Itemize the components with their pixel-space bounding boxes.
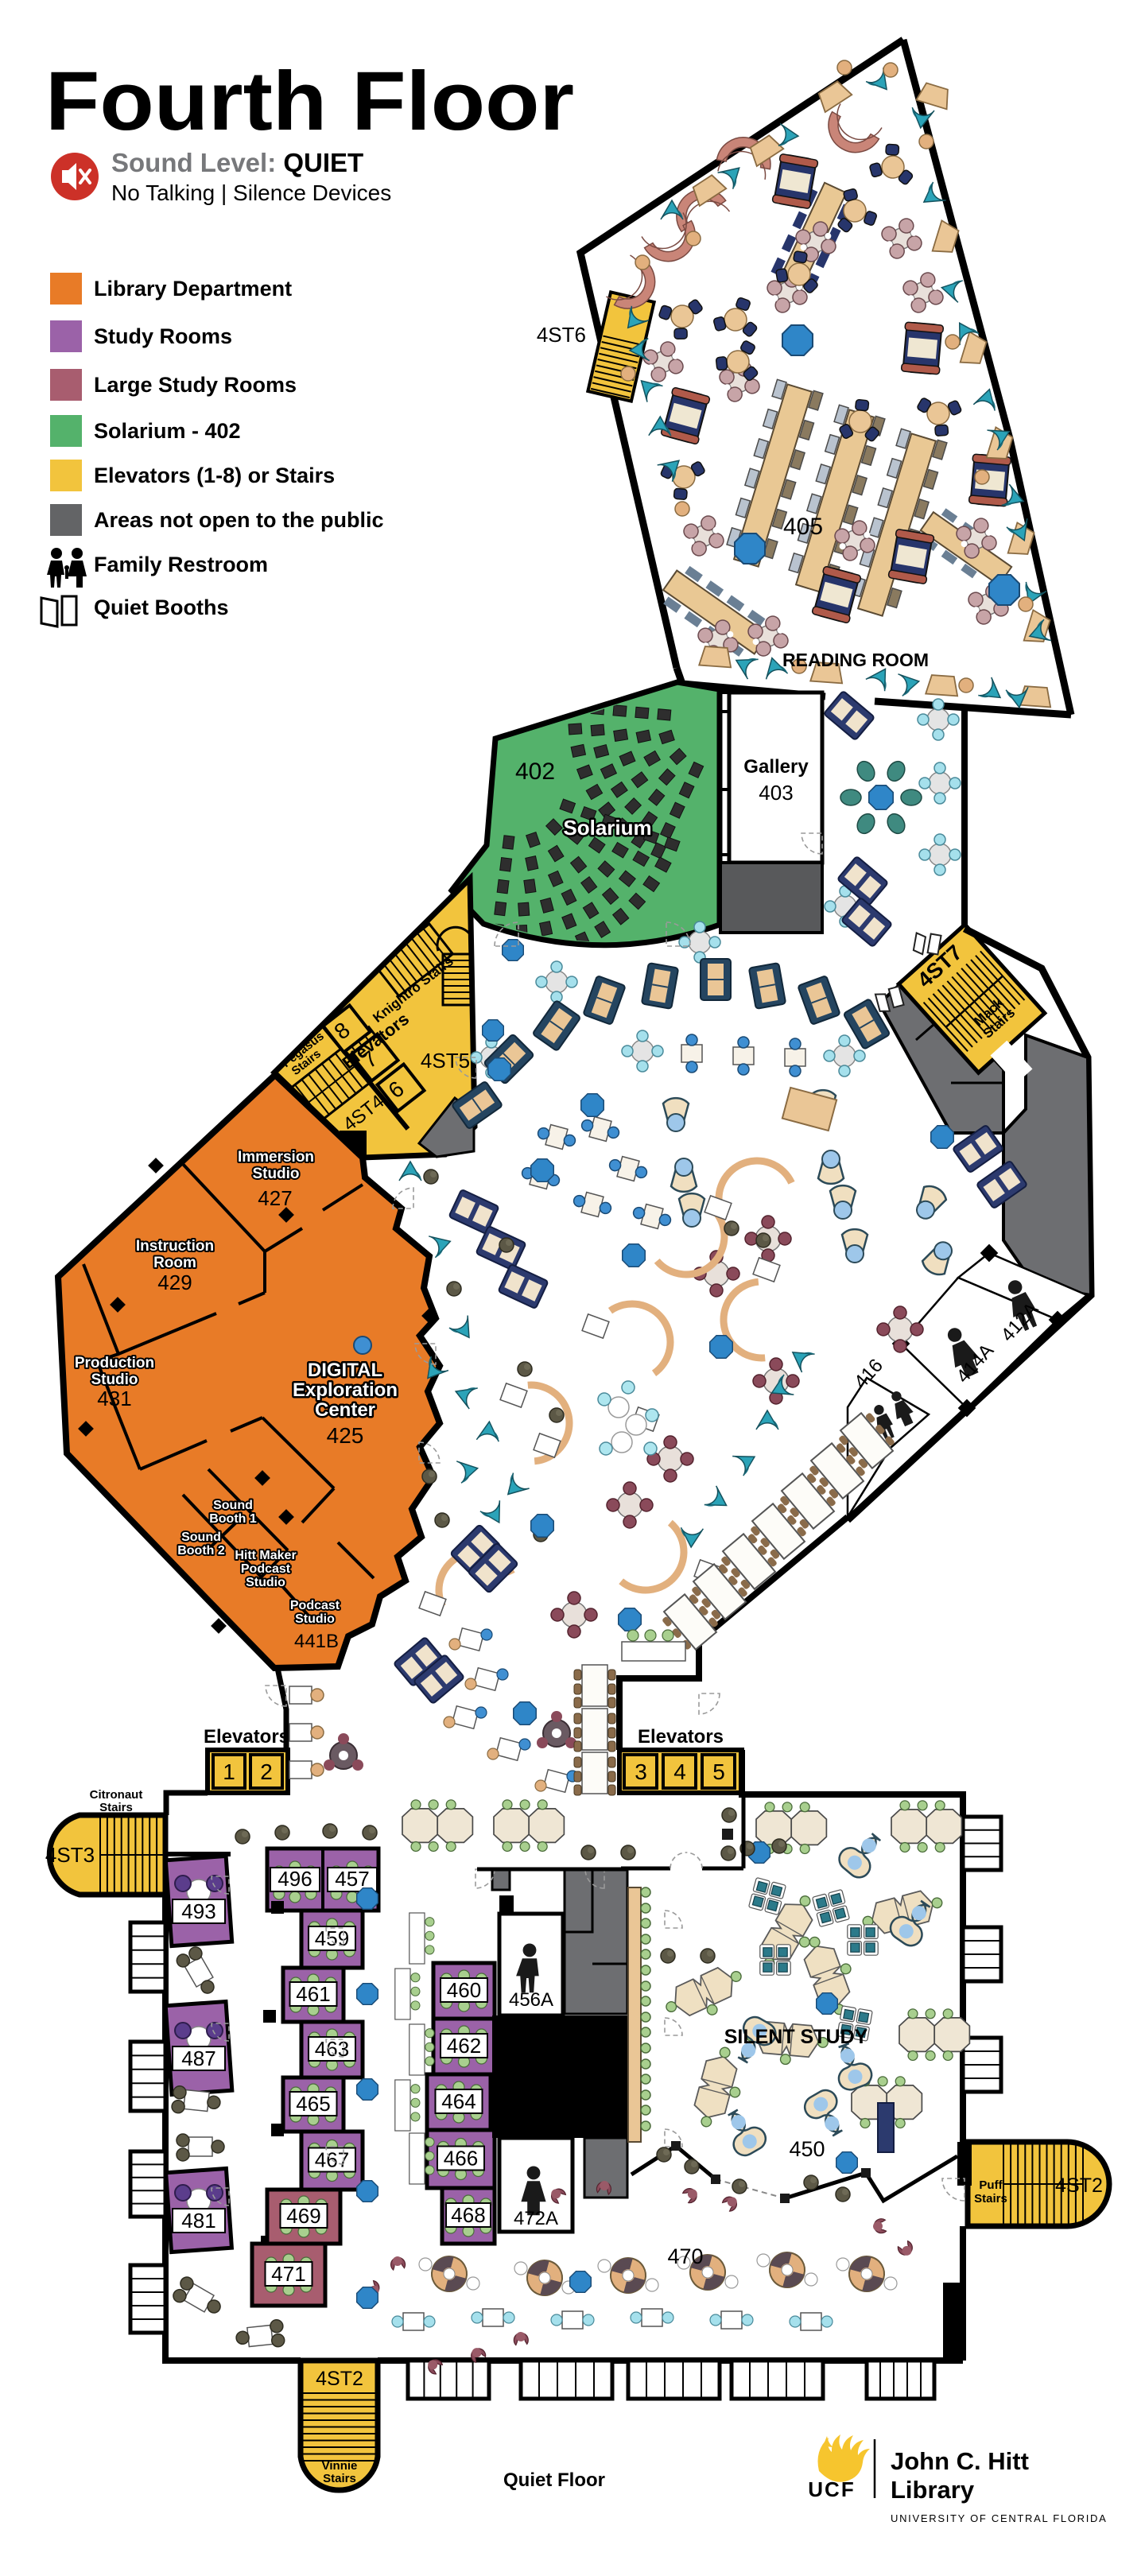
svg-text:Library Department: Library Department — [94, 277, 292, 301]
svg-text:Studio: Studio — [246, 1576, 285, 1589]
svg-text:461: 461 — [296, 1982, 330, 2006]
svg-text:Vinnie: Vinnie — [322, 2459, 358, 2473]
svg-text:468: 468 — [451, 2203, 485, 2227]
svg-text:DIGITAL: DIGITAL — [308, 1360, 382, 1381]
svg-text:Exploration: Exploration — [293, 1379, 398, 1401]
svg-text:Room: Room — [153, 1255, 196, 1271]
svg-text:465: 465 — [296, 2092, 330, 2116]
svg-text:4ST6: 4ST6 — [537, 323, 586, 347]
svg-text:Booth 1: Booth 1 — [209, 1512, 257, 1526]
svg-text:Production: Production — [75, 1355, 154, 1371]
svg-text:462: 462 — [447, 2034, 481, 2058]
svg-text:Stairs: Stairs — [974, 2192, 1007, 2206]
svg-text:4ST2: 4ST2 — [1055, 2174, 1103, 2197]
svg-text:427: 427 — [258, 1186, 292, 1210]
svg-text:Studio: Studio — [295, 1612, 335, 1626]
svg-text:463: 463 — [315, 2037, 349, 2061]
svg-text:Immersion: Immersion — [238, 1149, 314, 1166]
svg-text:464: 464 — [441, 2089, 475, 2113]
svg-text:Podcast: Podcast — [241, 1562, 291, 1576]
svg-text:425: 425 — [327, 1423, 364, 1448]
svg-text:Puff: Puff — [979, 2178, 1003, 2192]
svg-text:470: 470 — [667, 2244, 703, 2268]
svg-text:Areas not open to the public: Areas not open to the public — [94, 508, 384, 532]
svg-text:Fourth Floor: Fourth Floor — [45, 55, 574, 148]
svg-text:Sound Level: QUIET: Sound Level: QUIET — [111, 148, 363, 177]
svg-text:450: 450 — [789, 2137, 825, 2161]
svg-text:481: 481 — [181, 2209, 215, 2233]
svg-text:Hitt Maker: Hitt Maker — [235, 1549, 296, 1562]
svg-text:457: 457 — [335, 1867, 369, 1891]
svg-text:Studio: Studio — [252, 1166, 299, 1182]
svg-text:405: 405 — [783, 514, 823, 540]
svg-text:SILENT STUDY: SILENT STUDY — [724, 2026, 868, 2048]
svg-text:Center: Center — [315, 1399, 375, 1421]
svg-text:Sound: Sound — [213, 1499, 253, 1512]
svg-text:Library: Library — [891, 2476, 975, 2504]
svg-text:403: 403 — [759, 781, 793, 805]
svg-text:UCF: UCF — [808, 2477, 855, 2501]
svg-text:Solarium: Solarium — [563, 816, 651, 840]
svg-text:2: 2 — [260, 1759, 273, 1784]
svg-text:441B: 441B — [294, 1631, 339, 1652]
svg-text:Instruction: Instruction — [136, 1238, 214, 1255]
svg-text:Sound: Sound — [181, 1530, 221, 1544]
svg-text:Gallery: Gallery — [743, 756, 809, 778]
svg-text:466: 466 — [444, 2147, 478, 2171]
svg-text:5: 5 — [712, 1759, 725, 1784]
svg-text:John C. Hitt: John C. Hitt — [891, 2447, 1029, 2475]
svg-text:UNIVERSITY OF CENTRAL FLORIDA: UNIVERSITY OF CENTRAL FLORIDA — [891, 2512, 1108, 2524]
svg-text:469: 469 — [286, 2204, 320, 2228]
svg-text:Studio: Studio — [91, 1371, 138, 1388]
svg-text:Solarium - 402: Solarium - 402 — [94, 419, 241, 443]
svg-text:4ST5: 4ST5 — [421, 1049, 470, 1073]
svg-text:1: 1 — [223, 1759, 235, 1784]
svg-text:Elevators: Elevators — [204, 1726, 289, 1748]
svg-text:471: 471 — [271, 2262, 305, 2286]
svg-text:Study Rooms: Study Rooms — [94, 324, 232, 348]
svg-text:Elevators (1-8) or Stairs: Elevators (1-8) or Stairs — [94, 464, 335, 487]
svg-text:Quiet Booths: Quiet Booths — [94, 596, 229, 619]
svg-text:460: 460 — [447, 1978, 481, 2002]
svg-text:3: 3 — [635, 1759, 647, 1784]
svg-text:456A: 456A — [509, 1989, 553, 2011]
svg-text:Citronaut: Citronaut — [90, 1788, 143, 1802]
svg-text:496: 496 — [278, 1867, 312, 1891]
svg-text:4ST3: 4ST3 — [45, 1843, 95, 1867]
svg-text:Large Study Rooms: Large Study Rooms — [94, 373, 297, 397]
svg-text:429: 429 — [157, 1271, 192, 1294]
svg-text:487: 487 — [181, 2046, 215, 2070]
svg-text:Booth 2: Booth 2 — [177, 1544, 225, 1558]
svg-text:Elevators: Elevators — [638, 1726, 724, 1748]
svg-text:402: 402 — [515, 758, 555, 785]
svg-text:431: 431 — [97, 1387, 131, 1410]
svg-text:Family Restroom: Family Restroom — [94, 553, 268, 576]
svg-text:4ST2: 4ST2 — [316, 2368, 363, 2390]
svg-text:472A: 472A — [514, 2208, 558, 2229]
svg-text:No Talking | Silence Devices: No Talking | Silence Devices — [111, 180, 391, 205]
svg-text:Stairs: Stairs — [323, 2472, 356, 2485]
svg-text:459: 459 — [315, 1926, 349, 1950]
svg-text:4: 4 — [673, 1759, 686, 1784]
svg-text:Podcast: Podcast — [290, 1599, 340, 1612]
svg-text:Quiet Floor: Quiet Floor — [503, 2469, 605, 2491]
svg-text:READING ROOM: READING ROOM — [782, 650, 929, 670]
svg-text:493: 493 — [181, 1899, 215, 1923]
svg-text:Stairs: Stairs — [99, 1801, 133, 1814]
